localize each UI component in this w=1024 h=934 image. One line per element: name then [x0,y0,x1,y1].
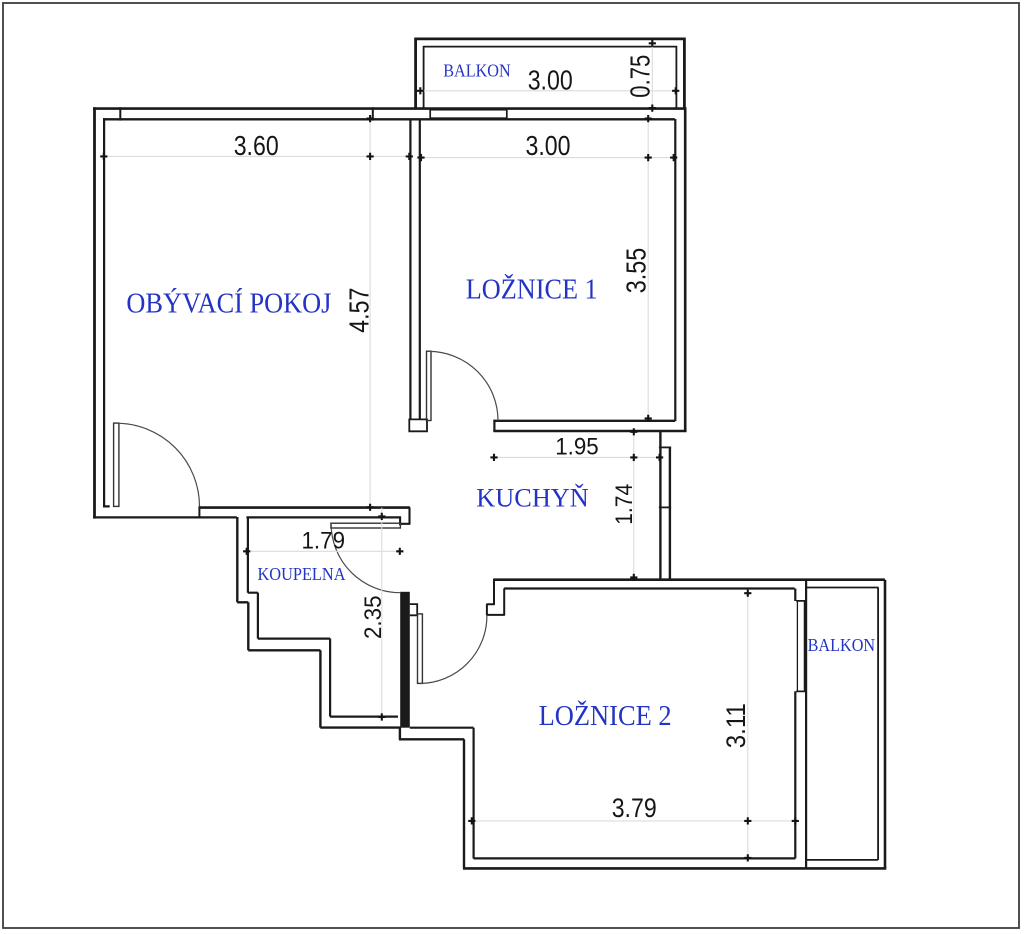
svg-text:3.79: 3.79 [612,793,657,823]
svg-text:1.95: 1.95 [555,434,599,461]
svg-text:KOUPELNA: KOUPELNA [258,564,346,584]
svg-text:4.57: 4.57 [343,288,374,333]
svg-text:1.79: 1.79 [302,527,346,554]
svg-text:KUCHYŇ: KUCHYŇ [476,484,589,513]
svg-text:OBÝVACÍ POKOJ: OBÝVACÍ POKOJ [126,288,331,319]
svg-text:BALKON: BALKON [443,61,511,81]
svg-text:1.74: 1.74 [611,484,638,525]
svg-text:3.55: 3.55 [620,248,651,294]
svg-text:3.00: 3.00 [528,65,573,96]
svg-text:2.35: 2.35 [360,596,387,640]
svg-text:BALKON: BALKON [808,635,876,655]
svg-text:0.75: 0.75 [624,55,655,98]
svg-text:3.00: 3.00 [526,130,571,161]
svg-text:3.60: 3.60 [234,130,279,161]
svg-text:LOŽNICE 2: LOŽNICE 2 [539,699,672,732]
svg-text:LOŽNICE 1: LOŽNICE 1 [466,272,598,305]
svg-text:3.11: 3.11 [721,703,751,748]
